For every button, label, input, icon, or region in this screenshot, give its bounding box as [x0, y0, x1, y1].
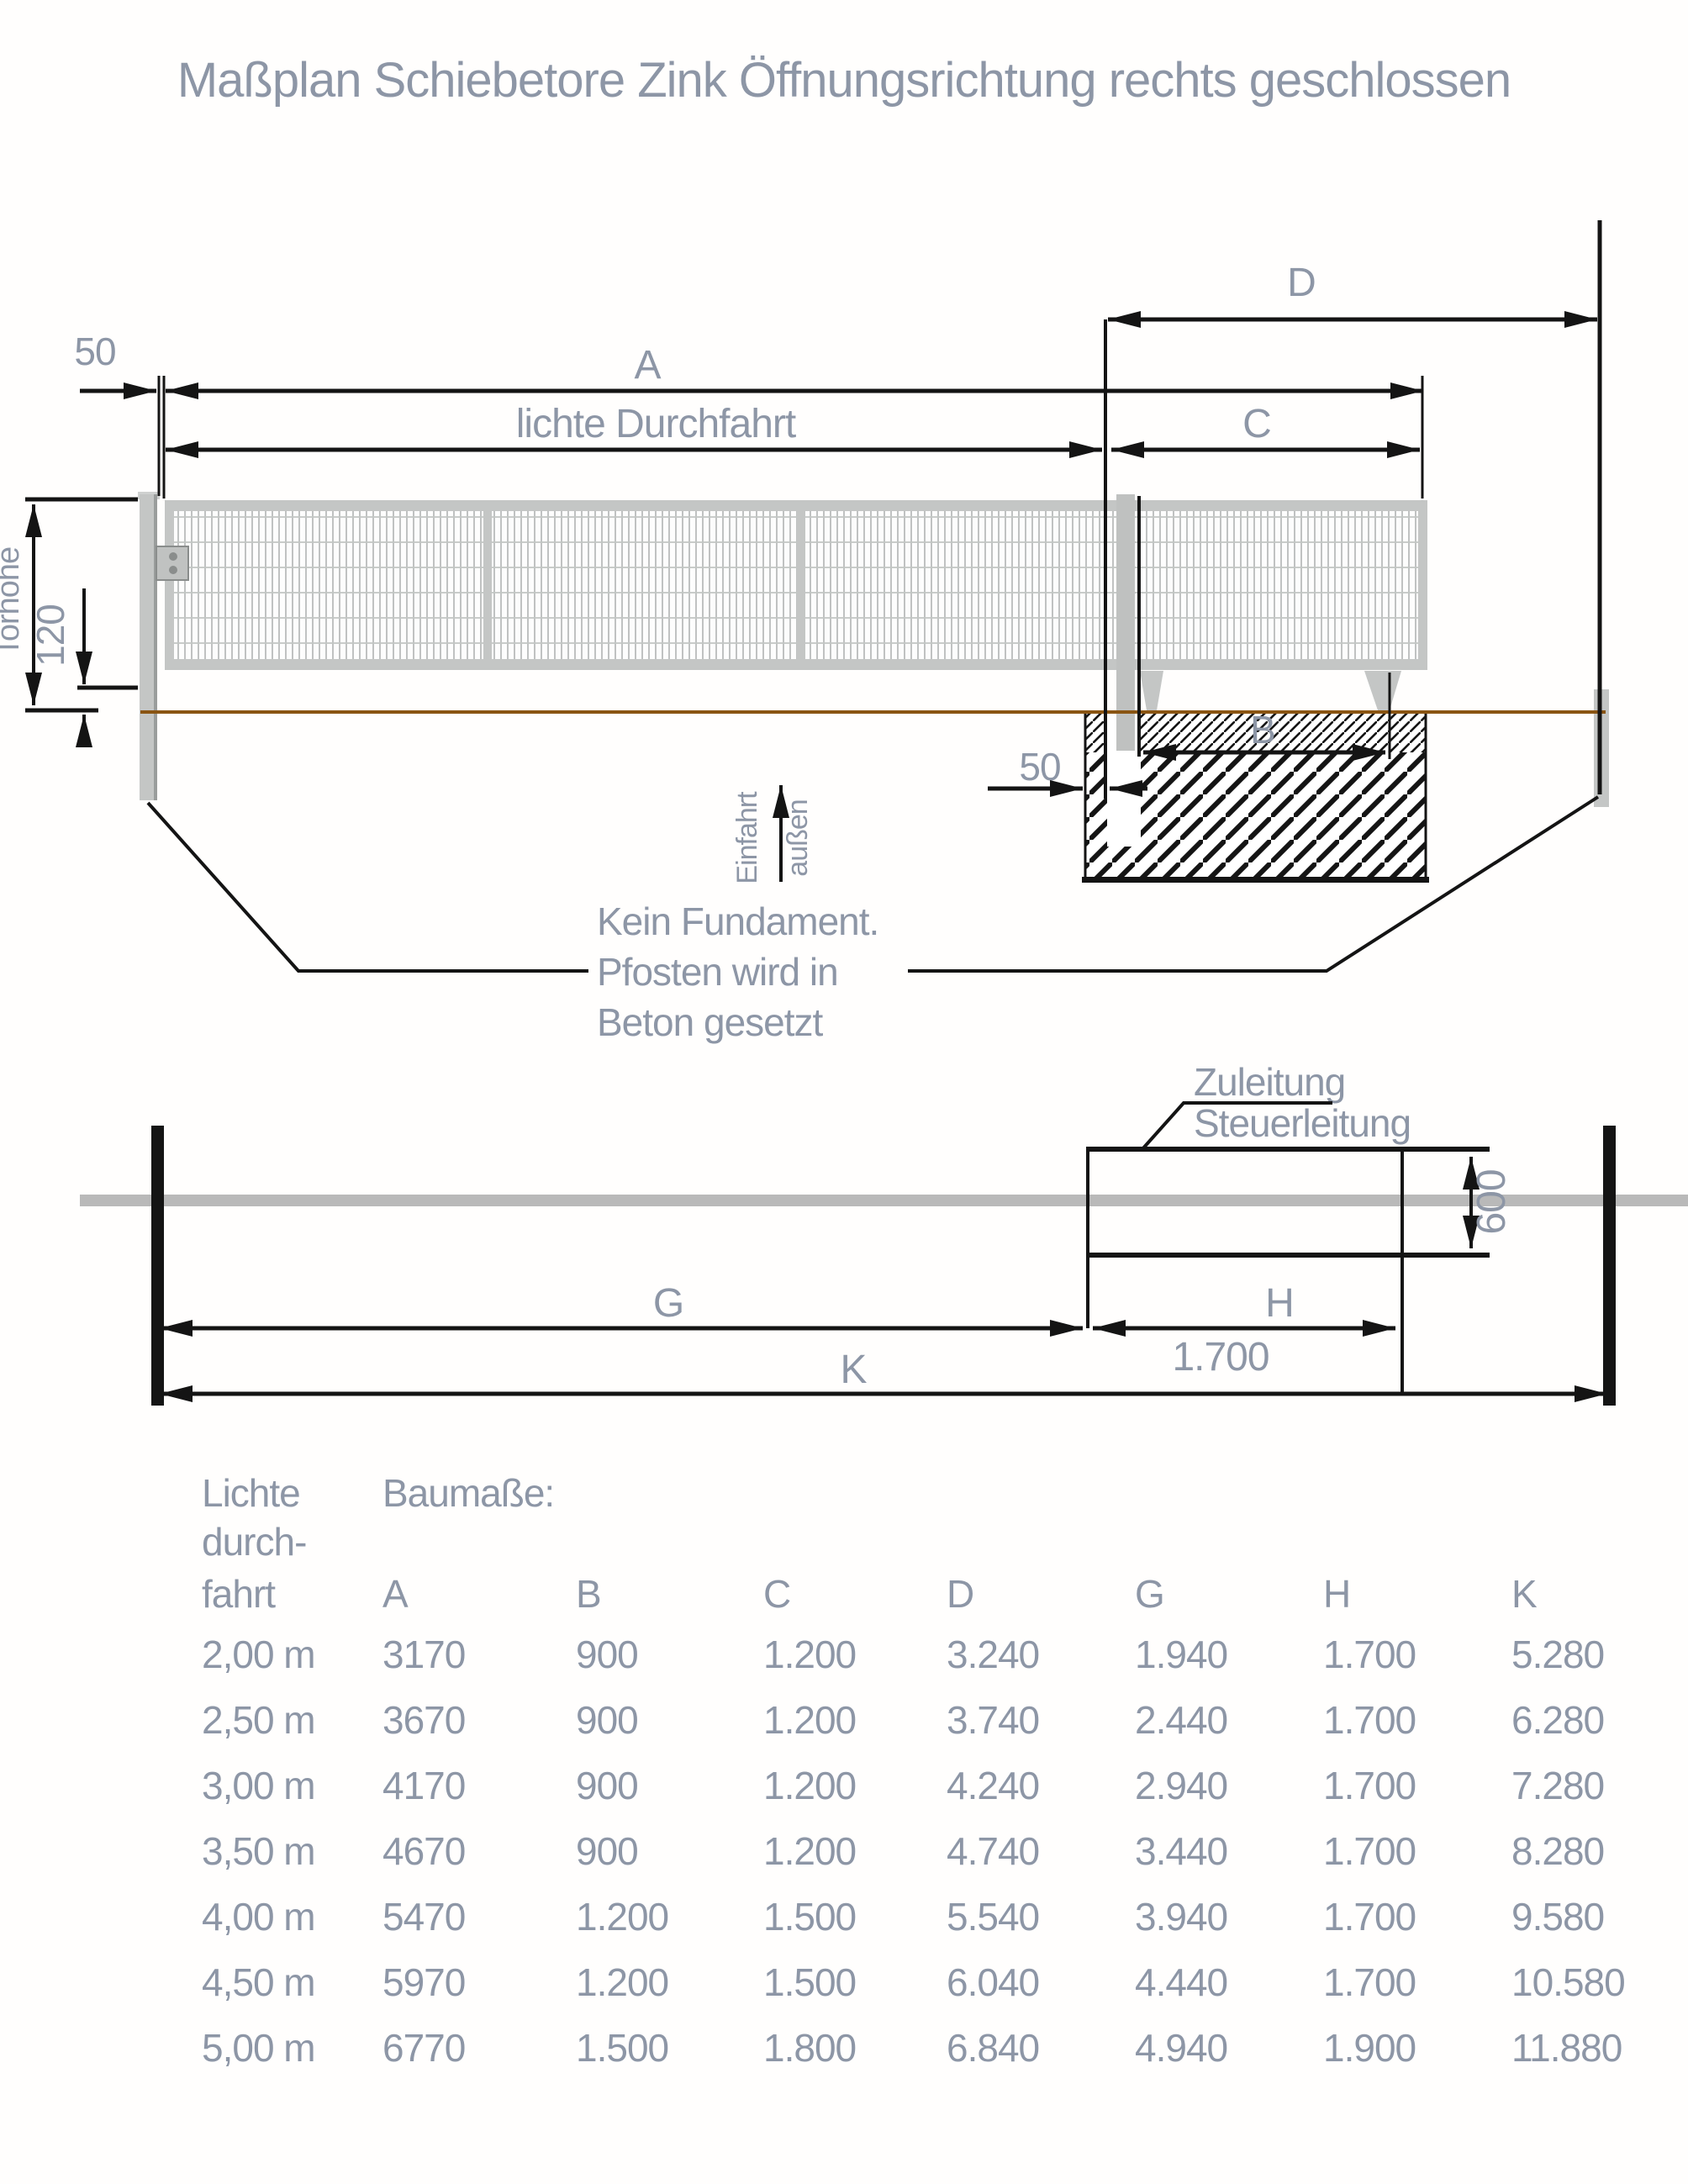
dim-label-50-bottom: 50	[1019, 745, 1060, 789]
table-cell: 10.580	[1511, 1949, 1688, 2015]
table-cell: 1.200	[763, 1753, 947, 1818]
foundation-bottom-edge	[1082, 877, 1429, 883]
table-cell: 1.200	[576, 1949, 763, 2015]
table-cell: 9.580	[1511, 1884, 1688, 1949]
table-cell: 7.280	[1511, 1753, 1688, 1818]
table-cell: 6770	[382, 2015, 576, 2081]
plan-left-post	[151, 1126, 164, 1406]
table-column-header-a: A	[382, 1566, 576, 1622]
gate-frame-left	[165, 500, 174, 670]
table-column-header-c: C	[763, 1566, 947, 1622]
dim-label-d: D	[1287, 261, 1316, 305]
direction-label-einfahrt: Einfahrt	[731, 791, 763, 884]
table-cell: 1.700	[1323, 1949, 1511, 2015]
fence-line-band	[80, 1195, 1688, 1206]
table-row-header-line: fahrt	[202, 1566, 382, 1622]
table-cell: 8.280	[1511, 1818, 1688, 1884]
table-cell: 4.740	[947, 1818, 1135, 1884]
ground-line	[140, 710, 1606, 714]
table-cell: 6.040	[947, 1949, 1135, 2015]
table-cell: 1.940	[1135, 1622, 1323, 1687]
table-cell: 3,00 m	[202, 1753, 382, 1818]
table-column-header-k: K	[1511, 1566, 1688, 1622]
table-cell: 5,00 m	[202, 2015, 382, 2081]
technical-drawing: D 50 A lichte Durchfahrt C B 50	[0, 0, 1688, 1480]
table-column-header-g: G	[1135, 1566, 1323, 1622]
dim-label-600: 600	[1469, 1169, 1514, 1234]
table-cell: 2,00 m	[202, 1622, 382, 1687]
table-cell: 1.700	[1323, 1753, 1511, 1818]
table-cell: 1.700	[1323, 1818, 1511, 1884]
table-row-header-line: Lichte	[202, 1469, 382, 1517]
table-row-header-line: durch-	[202, 1517, 382, 1566]
table-cell: 4.240	[947, 1753, 1135, 1818]
table-cell: 900	[576, 1753, 763, 1818]
table-cell: 5.280	[1511, 1622, 1688, 1687]
table-cell: 5470	[382, 1884, 576, 1949]
gate-frame-bottom	[165, 659, 1427, 670]
table-cell: 2,50 m	[202, 1687, 382, 1753]
cable-label-zuleitung: Zuleitung	[1194, 1060, 1345, 1104]
table-cell: 2.440	[1135, 1687, 1323, 1753]
plan-foundation-bottom	[1086, 1253, 1490, 1258]
table-cell: 5970	[382, 1949, 576, 2015]
dim-label-50-top: 50	[74, 330, 115, 373]
table-cell: 4.940	[1135, 2015, 1323, 2081]
table-cell: 900	[576, 1687, 763, 1753]
dim-label-k: K	[840, 1348, 867, 1392]
measure-plan-page: Maßplan Schiebetore Zink Öffnungsrichtun…	[0, 0, 1688, 2184]
dim-label-1700: 1.700	[1172, 1335, 1269, 1380]
table-cell: 4,00 m	[202, 1884, 382, 1949]
dim-label-120: 120	[29, 604, 72, 667]
support-foot-right	[1364, 671, 1401, 710]
table-cell: 3.240	[947, 1622, 1135, 1687]
gate-divider-1	[483, 500, 492, 670]
table-cell: 2.940	[1135, 1753, 1323, 1818]
table-cell: 4170	[382, 1753, 576, 1818]
plan-foundation-top	[1086, 1147, 1490, 1152]
note-line-1: Kein Fundament.	[597, 899, 878, 943]
table-cell: 1.200	[763, 1622, 947, 1687]
table-cell: 1.500	[763, 1884, 947, 1949]
direction-label-aussen: außen	[782, 799, 814, 876]
dim-label-g: G	[653, 1281, 683, 1326]
table-cell: 1.700	[1323, 1884, 1511, 1949]
support-foot-left	[1140, 671, 1163, 710]
table-cell: 3170	[382, 1622, 576, 1687]
table-cell: 1.500	[763, 1949, 947, 2015]
note-line-3: Beton gesetzt	[597, 1000, 824, 1044]
left-post-shade	[154, 494, 157, 800]
dimension-table: Lichte Baumaße: durch- fahrt A B C D G H…	[202, 1469, 1688, 2081]
dim-label-c: C	[1242, 402, 1271, 446]
table-cell: 1.900	[1323, 2015, 1511, 2081]
dim-label-a: A	[634, 343, 661, 388]
elevation-view: D 50 A lichte Durchfahrt C B 50	[0, 220, 1609, 1044]
gate-leaf	[165, 500, 1427, 670]
gate-frame-right	[1418, 500, 1427, 670]
table-column-header-b: B	[576, 1566, 763, 1622]
table-cell: 1.200	[576, 1884, 763, 1949]
gate-frame-top	[165, 500, 1427, 511]
gate-lock	[156, 546, 188, 580]
table-cell: 1.700	[1323, 1687, 1511, 1753]
table-cell: 3.740	[947, 1687, 1135, 1753]
table-column-header-h: H	[1323, 1566, 1511, 1622]
dim-label-gate-height: Torhöhe	[0, 547, 26, 657]
table-cell: 11.880	[1511, 2015, 1688, 2081]
table-cell: 4.440	[1135, 1949, 1323, 2015]
gate-divider-2	[797, 500, 805, 670]
plan-view: Zuleitung Steuerleitung 600 G H 1.700 K	[80, 1060, 1688, 1406]
dim-label-clear-passage: lichte Durchfahrt	[516, 402, 796, 446]
table-cell: 6.280	[1511, 1687, 1688, 1753]
table-cell: 900	[576, 1622, 763, 1687]
table-cell: 1.200	[763, 1818, 947, 1884]
table-group-label: Baumaße:	[382, 1469, 576, 1517]
table-cell: 5.540	[947, 1884, 1135, 1949]
table-cell: 3.940	[1135, 1884, 1323, 1949]
table-cell: 1.800	[763, 2015, 947, 2081]
table-cell: 6.840	[947, 2015, 1135, 2081]
table-cell: 3.440	[1135, 1818, 1323, 1884]
table-cell: 3,50 m	[202, 1818, 382, 1884]
cable-label-steuerleitung: Steuerleitung	[1194, 1101, 1411, 1145]
table-cell: 900	[576, 1818, 763, 1884]
note-line-2: Pfosten wird in	[597, 950, 838, 994]
note-leader-left	[148, 803, 588, 971]
table-cell: 4,50 m	[202, 1949, 382, 2015]
table-cell: 1.700	[1323, 1622, 1511, 1687]
dim-label-h: H	[1265, 1281, 1294, 1326]
table-cell: 4670	[382, 1818, 576, 1884]
table-cell: 3670	[382, 1687, 576, 1753]
table-cell: 1.200	[763, 1687, 947, 1753]
table-cell: 1.500	[576, 2015, 763, 2081]
dim-label-b: B	[1250, 708, 1275, 752]
table-column-header-d: D	[947, 1566, 1135, 1622]
plan-right-post	[1603, 1126, 1616, 1406]
